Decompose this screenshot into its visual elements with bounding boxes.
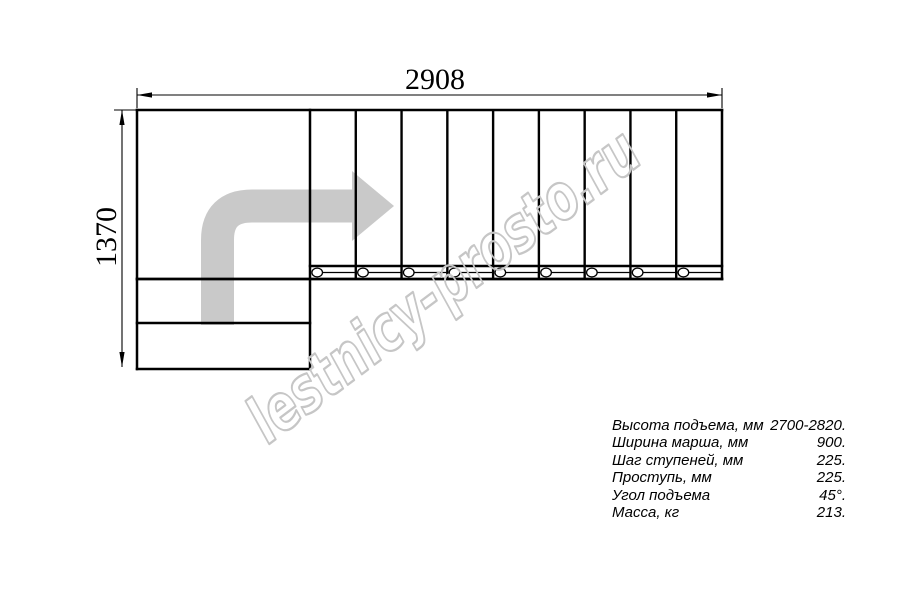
spec-row: Шаг ступеней, мм 225.: [612, 452, 846, 469]
spec-label: Проступь, мм: [612, 469, 712, 486]
watermark-text: lestnicy-prosto.ru: [233, 115, 654, 458]
spec-value: 900.: [817, 434, 846, 451]
spec-row: Масса, кг 213.: [612, 504, 846, 521]
fastener-hole-icon: [541, 268, 552, 277]
spec-label: Масса, кг: [612, 504, 679, 521]
width-dimension: 2908: [137, 63, 722, 108]
fastener-hole-icon: [358, 268, 369, 277]
spec-label: Ширина марша, мм: [612, 434, 748, 451]
spec-row: Ширина марша, мм 900.: [612, 434, 846, 451]
spec-row: Проступь, мм 225.: [612, 469, 846, 486]
specs-table: Высота подъема, мм 2700-2820. Ширина мар…: [612, 417, 846, 521]
direction-arrow-head: [352, 171, 394, 241]
spec-row: Угол подъема 45°.: [612, 487, 846, 504]
height-dimension: 1370: [90, 110, 137, 367]
spec-value: 213.: [817, 504, 846, 521]
height-dim-arrow-bottom-icon: [119, 352, 124, 367]
height-dim-arrow-top-icon: [119, 110, 124, 125]
width-dim-arrow-left-icon: [137, 92, 152, 97]
fastener-hole-icon: [632, 268, 643, 277]
spec-row: Высота подъема, мм 2700-2820.: [612, 417, 846, 434]
fastener-hole-icon: [678, 268, 689, 277]
spec-label: Угол подъема: [612, 487, 710, 504]
spec-label: Шаг ступеней, мм: [612, 452, 743, 469]
spec-value: 2700-2820.: [770, 417, 846, 434]
spec-label: Высота подъема, мм: [612, 417, 764, 434]
stair-plan-page: 2908 1370 lestnicy-prosto.ru Высота подъ…: [0, 0, 900, 600]
width-dim-arrow-right-icon: [707, 92, 722, 97]
fastener-hole-icon: [587, 268, 598, 277]
width-dimension-label: 2908: [405, 63, 465, 96]
fastener-hole-icon: [312, 268, 323, 277]
spec-value: 225.: [817, 469, 846, 486]
height-dimension-label: 1370: [90, 207, 123, 267]
spec-value: 225.: [817, 452, 846, 469]
spec-value: 45°.: [819, 487, 846, 504]
